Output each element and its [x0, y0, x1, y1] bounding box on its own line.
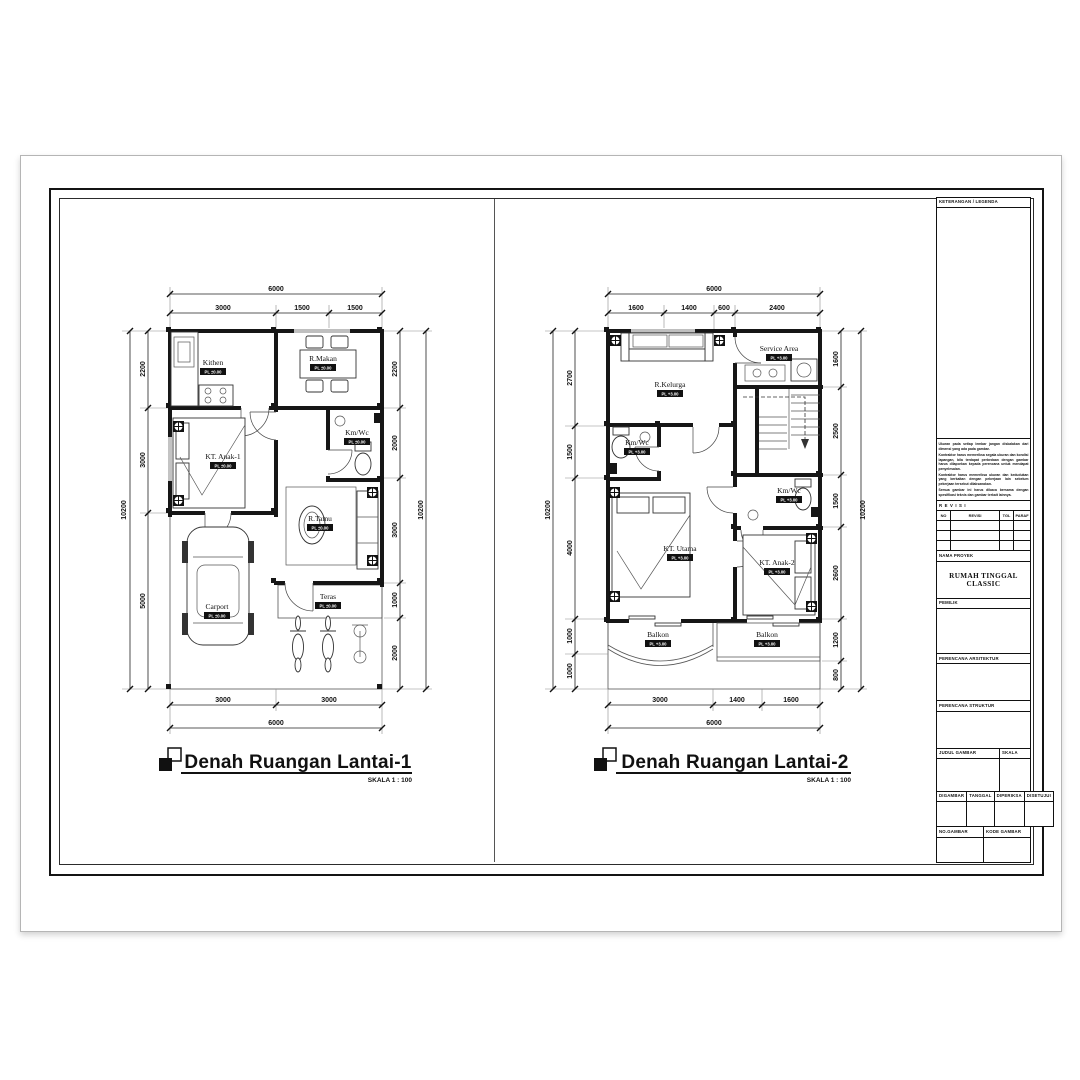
svg-text:PL +3.00: PL +3.00: [758, 641, 776, 646]
svg-text:3000: 3000: [140, 452, 147, 468]
svg-text:1400: 1400: [729, 697, 745, 704]
svg-text:Km/Wc: Km/Wc: [777, 486, 801, 495]
svg-text:5000: 5000: [140, 593, 147, 609]
no-gambar-box: [936, 837, 984, 863]
plan2-scale: SKALA 1 : 100: [806, 777, 851, 784]
svg-text:PL ±0.00: PL ±0.00: [314, 365, 332, 370]
svg-text:Km/Wc: Km/Wc: [345, 428, 369, 437]
svg-text:1400: 1400: [681, 305, 697, 312]
svg-text:600: 600: [718, 305, 730, 312]
svg-text:PL +3.00: PL +3.00: [661, 391, 679, 396]
revision-row: [937, 521, 1031, 531]
svg-text:1000: 1000: [567, 663, 574, 679]
number-row: NO.GAMBAR KODE GAMBAR: [936, 826, 1031, 862]
svg-text:Kithen: Kithen: [202, 358, 223, 367]
family-room-furniture: [610, 333, 725, 361]
svg-text:KT. Anak-2: KT. Anak-2: [759, 558, 795, 567]
car: [182, 527, 254, 645]
floor-plan-lantai-2: 6000 1600 1400 600 2400 10200 2700 1500 …: [495, 199, 938, 862]
plan1-scale: SKALA 1 : 100: [367, 777, 412, 784]
svg-text:6000: 6000: [706, 720, 722, 727]
svg-text:3000: 3000: [321, 697, 337, 704]
general-notes: Ukuran pada setiap lembar jangan diskala…: [936, 438, 1031, 501]
note-line: Kontraktor harus memeriksa ukuran dan ke…: [939, 473, 1029, 486]
svg-text:PL +3.00: PL +3.00: [649, 641, 667, 646]
svg-text:Teras: Teras: [319, 592, 335, 601]
legend-box: [936, 207, 1031, 440]
floor-plan-lantai-1: 6000 3000 1500 1500 10200 2200 3000 5000…: [60, 199, 494, 862]
svg-text:R.Makan: R.Makan: [309, 354, 337, 363]
svg-text:2000: 2000: [392, 645, 399, 661]
skala-box: [999, 758, 1031, 792]
svg-text:3000: 3000: [215, 305, 231, 312]
judul-gambar-box: [936, 758, 1000, 792]
kode-gambar-box: [983, 837, 1031, 863]
note-line: Ukuran pada setiap lembar jangan diskala…: [939, 442, 1029, 451]
svg-text:Carport: Carport: [205, 602, 229, 611]
svg-text:PL ±0.00: PL ±0.00: [204, 369, 222, 374]
tanggal-box: [966, 801, 994, 827]
svg-text:1600: 1600: [833, 351, 840, 367]
dim-total-top: 6000: [268, 286, 284, 293]
svg-text:2700: 2700: [567, 370, 574, 386]
svg-text:PL ±0.00: PL ±0.00: [319, 603, 337, 608]
svg-text:2400: 2400: [769, 305, 785, 312]
svg-text:6000: 6000: [706, 286, 722, 293]
revisi-col-paraf: PARAF: [1014, 511, 1031, 521]
plan1-title: Denah Ruangan Lantai-1: [184, 752, 411, 773]
revision-table: NO REVISI TGL PARAF: [936, 510, 1031, 551]
svg-text:2500: 2500: [833, 423, 840, 439]
svg-text:R.Kelurga: R.Kelurga: [654, 380, 686, 389]
svg-text:KT. Anak-1: KT. Anak-1: [205, 452, 241, 461]
svg-text:10200: 10200: [418, 500, 425, 520]
svg-text:1600: 1600: [628, 305, 644, 312]
svg-text:PL +3.00: PL +3.00: [628, 449, 646, 454]
svg-text:4000: 4000: [567, 540, 574, 556]
svg-text:PL ±0.00: PL ±0.00: [348, 439, 366, 444]
svg-text:KT. Utama: KT. Utama: [663, 544, 697, 553]
svg-text:PL +3.00: PL +3.00: [780, 497, 798, 502]
svg-text:1000: 1000: [392, 592, 399, 608]
svg-text:10200: 10200: [545, 500, 552, 520]
svg-text:3000: 3000: [652, 697, 668, 704]
svg-text:1500: 1500: [294, 305, 310, 312]
revisi-col-revisi: REVISI: [951, 511, 1000, 521]
note-line: Semua gambar ini harus dibaca bersama de…: [939, 488, 1029, 497]
revision-row: [937, 531, 1031, 541]
svg-text:10200: 10200: [121, 500, 128, 520]
svg-text:1000: 1000: [567, 628, 574, 644]
svg-text:1500: 1500: [567, 444, 574, 460]
svg-text:2000: 2000: [392, 435, 399, 451]
digambar-box: [936, 801, 967, 827]
svg-text:Km/Wc: Km/Wc: [625, 438, 649, 447]
judul-skala-row: JUDUL GAMBAR SKALA: [936, 748, 1031, 792]
pemilik-box: [936, 608, 1031, 654]
svg-text:Service Area: Service Area: [759, 344, 798, 353]
svg-text:PL +3.00: PL +3.00: [671, 555, 689, 560]
svg-text:1600: 1600: [783, 697, 799, 704]
svg-text:2200: 2200: [140, 361, 147, 377]
svg-text:6000: 6000: [268, 720, 284, 727]
note-line: Kontraktor harus memeriksa segala ukuran…: [939, 453, 1029, 471]
svg-text:10200: 10200: [860, 500, 867, 520]
revisi-col-tgl: TGL: [999, 511, 1013, 521]
title-block: KETERANGAN / LEGENDA Ukuran pada setiap …: [936, 198, 1031, 863]
svg-text:PL ±0.00: PL ±0.00: [311, 525, 329, 530]
svg-text:2600: 2600: [833, 565, 840, 581]
approval-row: DIGAMBAR TANGGAL DIPERIKSA DISETUJUI: [936, 791, 1031, 827]
svg-text:PL ±0.00: PL ±0.00: [208, 613, 226, 618]
svg-text:Balkon: Balkon: [756, 630, 778, 639]
staircase: [743, 389, 820, 449]
perencana-struktur-box: [936, 711, 1031, 749]
svg-text:1500: 1500: [833, 493, 840, 509]
perencana-arsitektur-box: [936, 663, 1031, 701]
svg-text:3000: 3000: [215, 697, 231, 704]
svg-text:3000: 3000: [392, 522, 399, 538]
plan2-title: Denah Ruangan Lantai-2: [621, 752, 848, 773]
diperiksa-box: [994, 801, 1025, 827]
disetujui-box: [1024, 801, 1054, 827]
svg-text:Balkon: Balkon: [647, 630, 669, 639]
plan1-title-group: Denah Ruangan Lantai-1 SKALA 1 : 100: [159, 748, 412, 784]
svg-text:2200: 2200: [392, 361, 399, 377]
svg-text:R.Tamu: R.Tamu: [308, 514, 332, 523]
svg-text:PL +3.00: PL +3.00: [770, 355, 788, 360]
svg-text:1500: 1500: [347, 305, 363, 312]
drawing-sheet: 6000 3000 1500 1500 10200 2200 3000 5000…: [20, 155, 1062, 932]
svg-text:PL +3.00: PL +3.00: [768, 569, 786, 574]
svg-text:1200: 1200: [833, 632, 840, 648]
project-name: RUMAH TINGGAL CLASSIC: [936, 561, 1031, 599]
motorcycles: [290, 616, 368, 672]
plan2-title-group: Denah Ruangan Lantai-2 SKALA 1 : 100: [594, 748, 851, 784]
revision-row: [937, 541, 1031, 551]
revisi-col-no: NO: [937, 511, 951, 521]
svg-text:800: 800: [833, 669, 840, 681]
svg-text:PL ±0.00: PL ±0.00: [214, 463, 232, 468]
